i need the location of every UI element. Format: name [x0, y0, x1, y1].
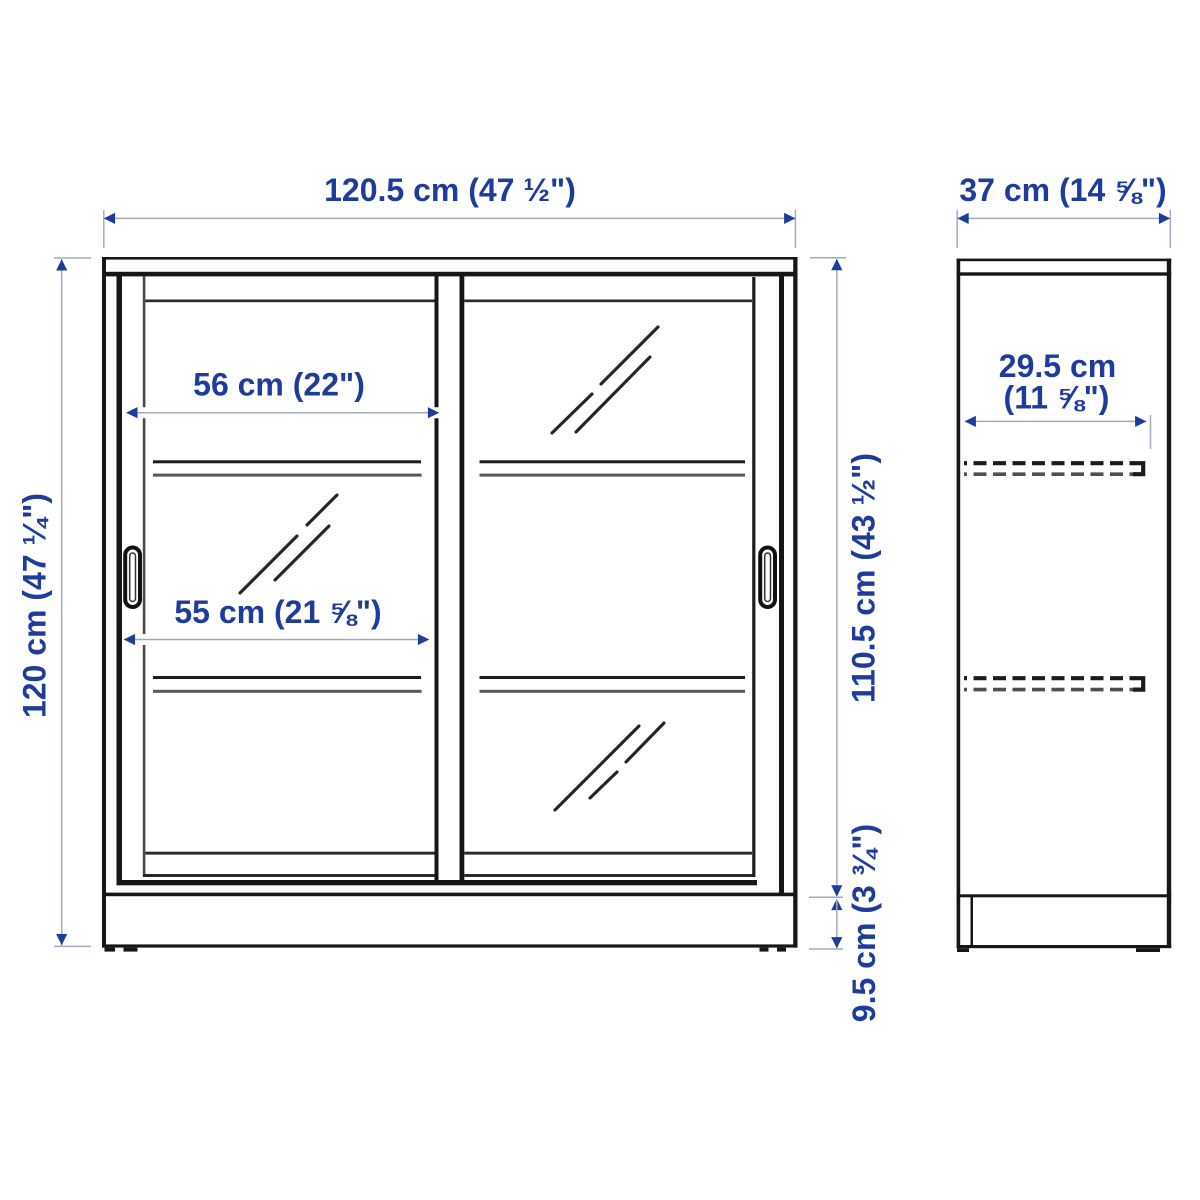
svg-text:56 cm (22"): 56 cm (22"): [193, 367, 365, 403]
svg-text:55 cm (21 ⅝"): 55 cm (21 ⅝"): [174, 594, 381, 630]
svg-text:110.5 cm (43 ½"): 110.5 cm (43 ½"): [846, 453, 882, 703]
svg-text:37 cm (14 ⅝"): 37 cm (14 ⅝"): [959, 172, 1166, 208]
svg-text:(11 ⅝"): (11 ⅝"): [1004, 380, 1110, 416]
svg-text:9.5 cm (3 ¾"): 9.5 cm (3 ¾"): [846, 824, 882, 1022]
svg-text:120 cm (47 ¼"): 120 cm (47 ¼"): [17, 493, 53, 718]
svg-text:120.5 cm (47 ½"): 120.5 cm (47 ½"): [324, 172, 576, 208]
